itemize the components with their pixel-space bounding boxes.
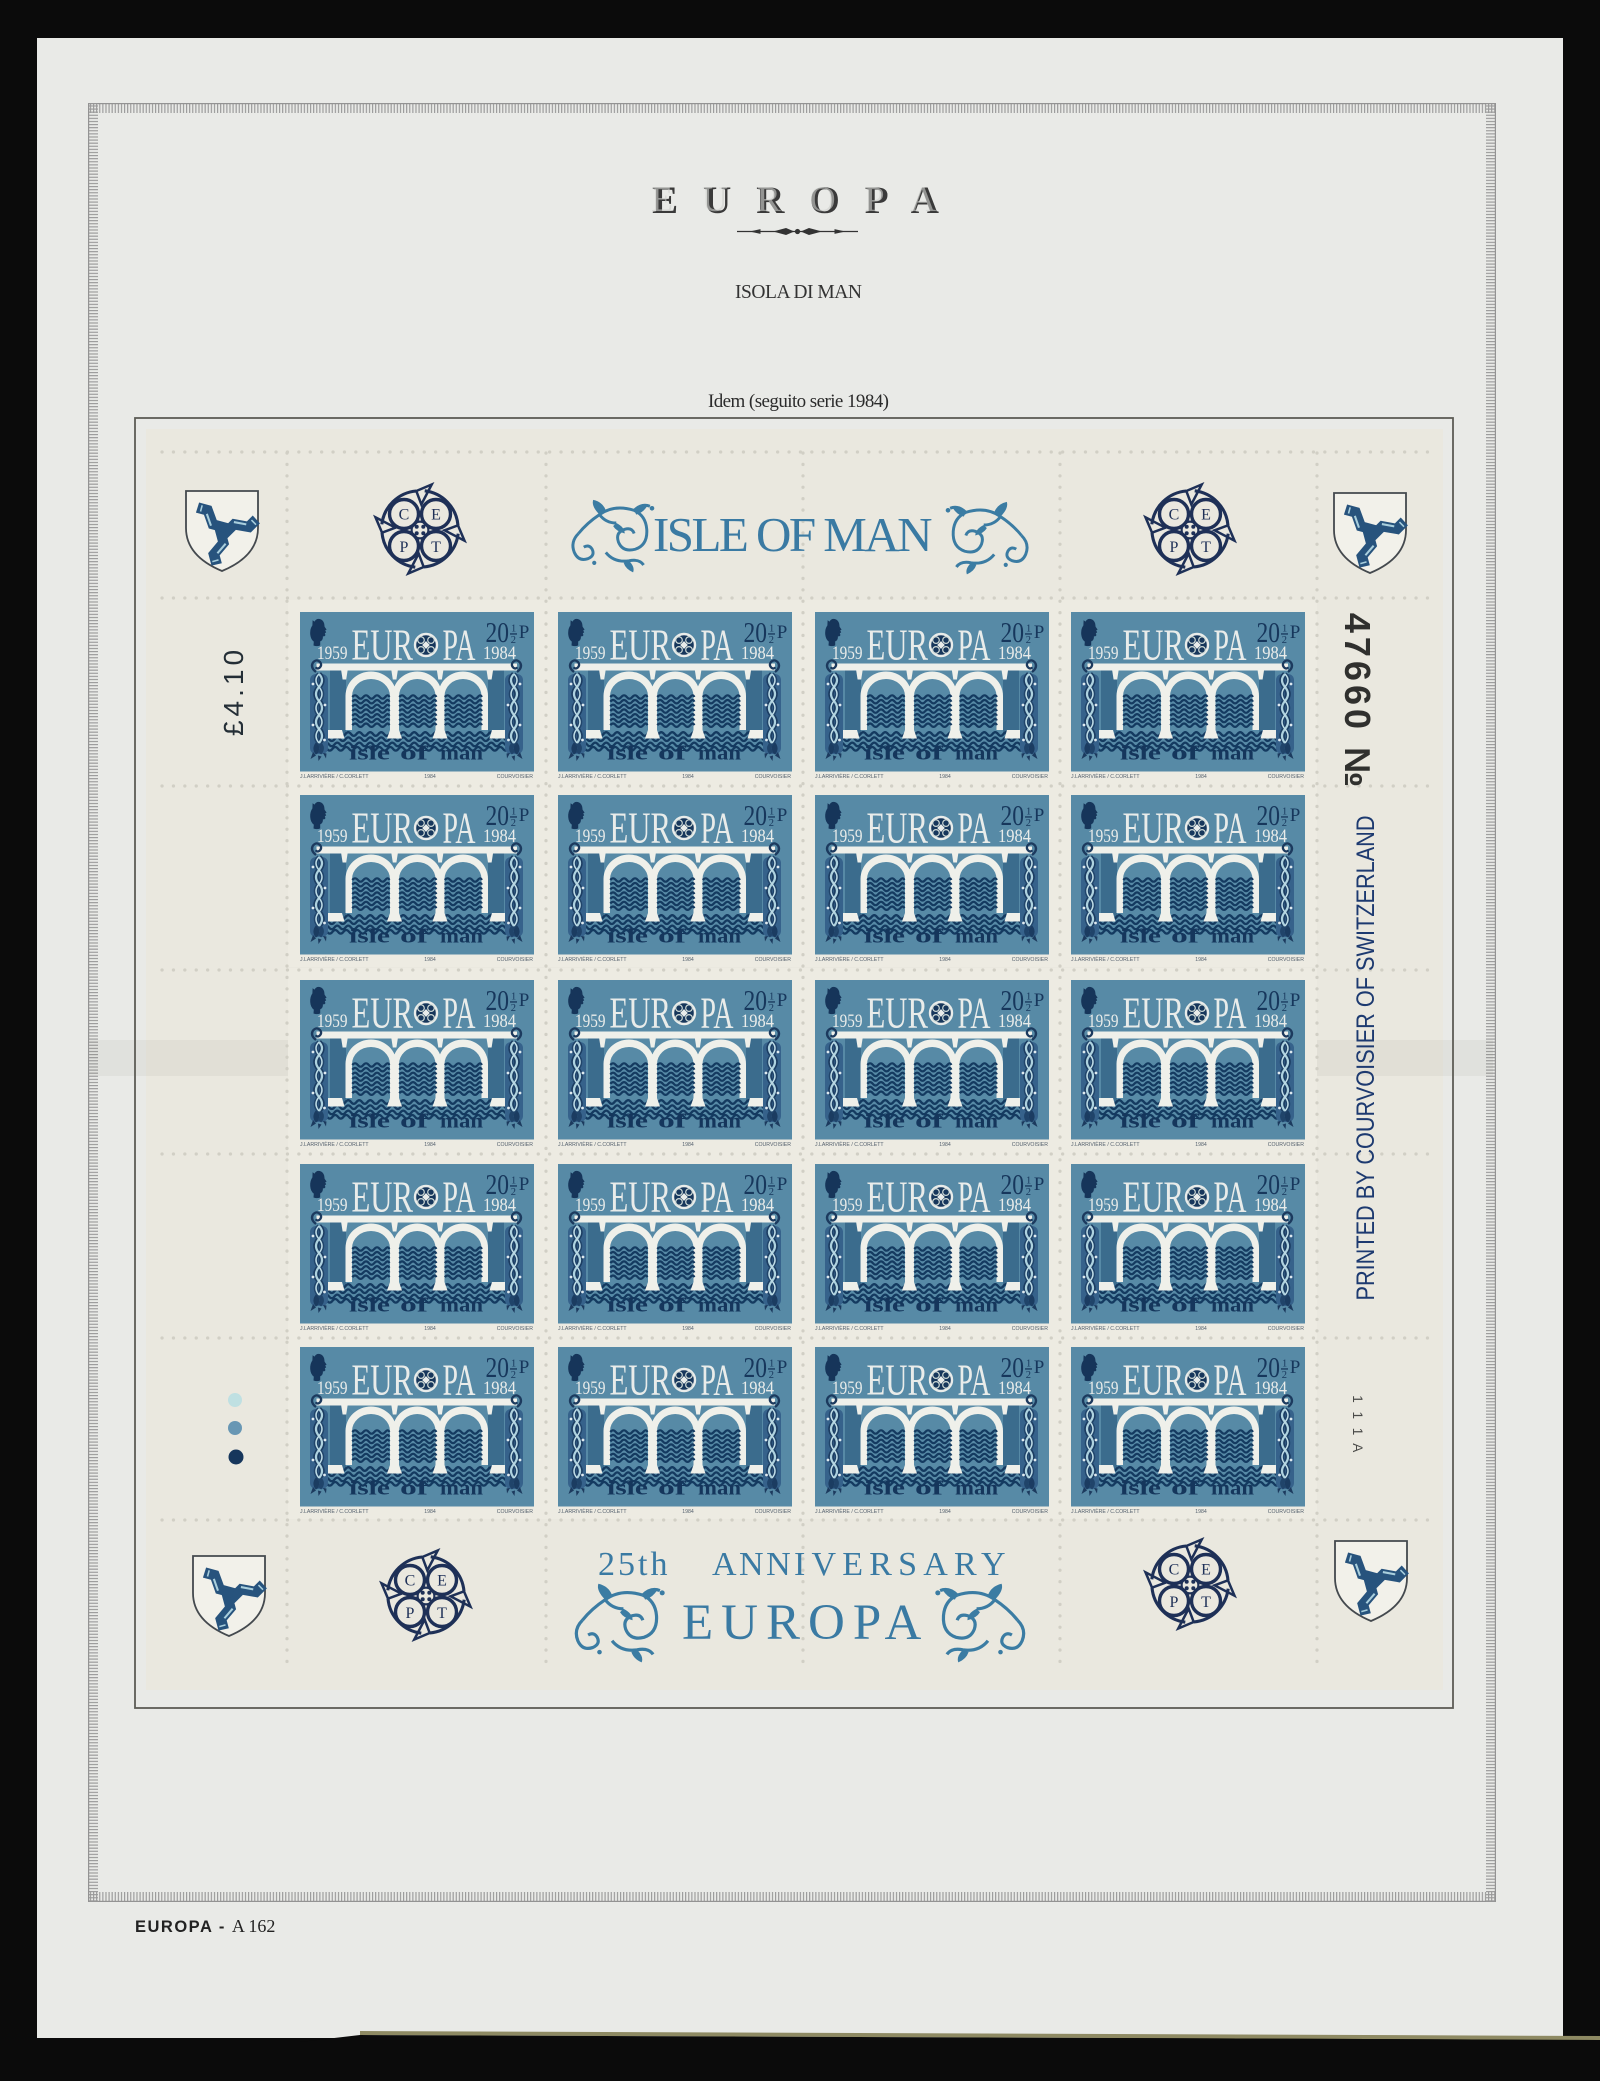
svg-text:25th: 25th <box>598 1546 670 1583</box>
svg-text:EUROPA: EUROPA <box>682 1595 929 1651</box>
svg-text:1 1 1 A: 1 1 1 A <box>1350 1395 1365 1455</box>
svg-text:ANN: ANN <box>712 1546 793 1583</box>
svg-text:47660 №: 47660 № <box>1337 613 1378 791</box>
svg-text:Idem (seguito serie 1984): Idem (seguito serie 1984) <box>708 391 889 412</box>
svg-text:ISLE OF MAN: ISLE OF MAN <box>653 507 934 562</box>
svg-text:E​UROPA: E​UROPA <box>651 179 965 219</box>
svg-text:ISOLA DI MAN: ISOLA DI MAN <box>735 282 862 303</box>
svg-text:PRINTED BY COURVOISIER OF: PRINTED BY COURVOISIER OF SWITZERLAND <box>1352 816 1380 1301</box>
svg-text:IVERSARY: IVERSARY <box>794 1546 1012 1583</box>
svg-text:EUROPA - A 162: EUROPA - A 162 <box>135 1916 275 1936</box>
svg-text:£4.10: £4.10 <box>218 646 249 736</box>
